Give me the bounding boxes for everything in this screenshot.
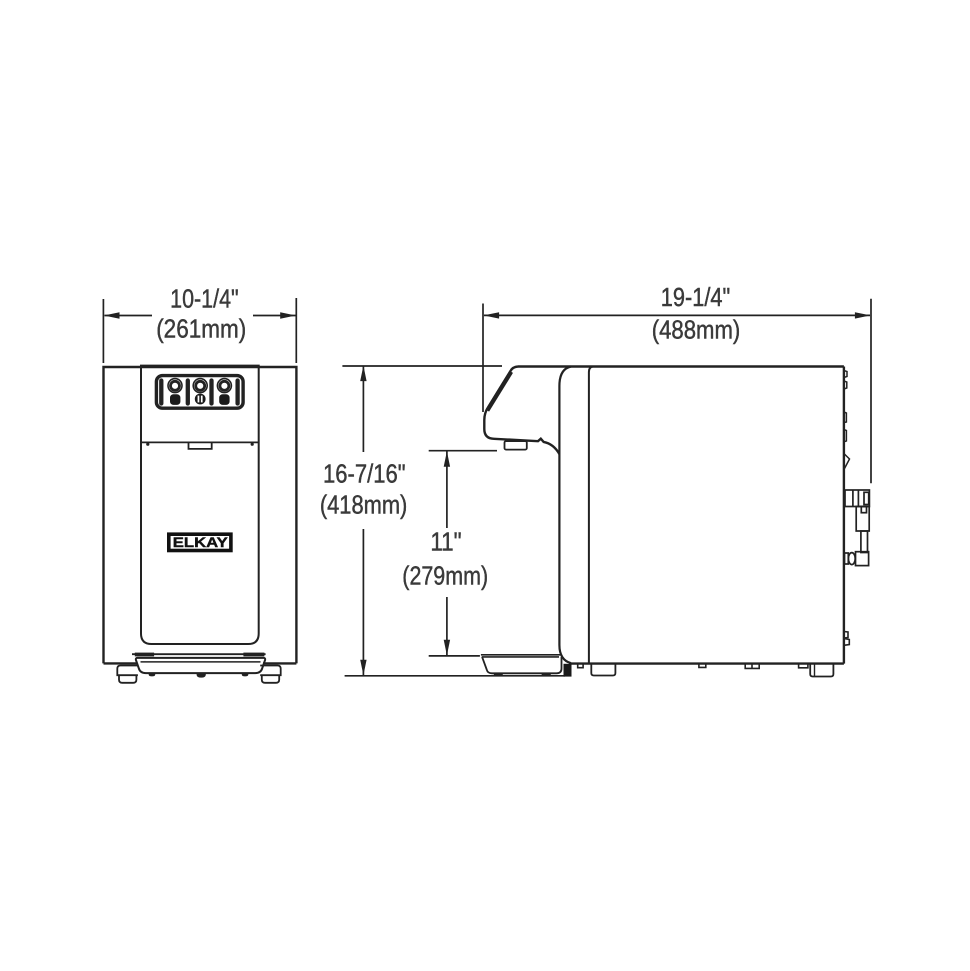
svg-text:11": 11" (430, 527, 461, 557)
svg-text:10-1/4": 10-1/4" (170, 284, 239, 314)
svg-text:16-7/16": 16-7/16" (323, 459, 406, 489)
svg-text:(279mm): (279mm) (402, 561, 488, 591)
svg-text:19-1/4": 19-1/4" (661, 282, 731, 312)
svg-text:ELKAY: ELKAY (173, 534, 229, 550)
svg-text:(488mm): (488mm) (652, 315, 741, 345)
svg-text:(261mm): (261mm) (156, 314, 246, 344)
svg-text:(418mm): (418mm) (320, 490, 408, 520)
